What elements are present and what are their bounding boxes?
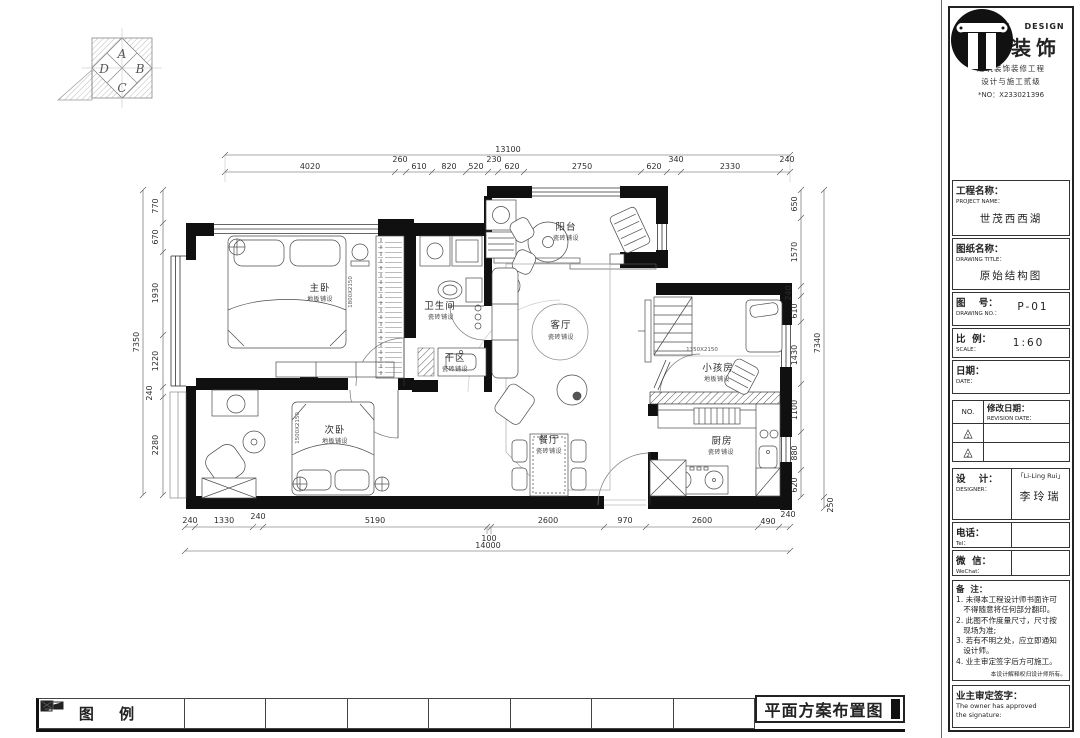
drawing-no-box: 图 号： DRAWING NO.： P-01: [952, 292, 1070, 326]
room-finish-dining: 瓷砖铺设: [536, 447, 562, 455]
room-label-dining: 餐厅: [538, 434, 559, 446]
title-end-bar: [891, 699, 900, 719]
note-line: 现场为准;: [956, 626, 1066, 636]
dim-label: 490: [760, 517, 775, 526]
legend-symbol-ramp: [429, 699, 510, 728]
nanhong-logo-icon: [950, 8, 1014, 72]
revision-label-en: REVISION DATE：: [987, 414, 1066, 422]
sheet-title-box: 平面方案布置图: [755, 695, 905, 723]
dim-label: 340: [668, 155, 683, 164]
floor-plan-canvas: A B C D: [0, 0, 1080, 738]
sheet-divider-line: [941, 0, 942, 738]
dim-label: 2750: [572, 162, 592, 171]
master-bedroom-furniture: [228, 236, 404, 378]
room-finish-balcony: 瓷砖铺设: [553, 234, 579, 242]
room-label-kids: 小孩房: [702, 362, 734, 374]
drawing-no-value: P-01: [1000, 301, 1066, 313]
room-label-bath: 卫生间: [424, 300, 456, 312]
dim-label: 240: [250, 512, 265, 521]
brand-subtitle-2: 设计与施工贰级: [952, 76, 1070, 87]
tel-label-en: Tel：: [956, 539, 1008, 547]
dim-label: 1100: [790, 400, 799, 420]
dim-label: 250: [826, 497, 835, 512]
dim-label: 670: [151, 229, 160, 244]
dim-label: 970: [617, 516, 632, 525]
drawing-title-box: 图纸名称： DRAWING TITLE： 原始结构图: [952, 238, 1070, 290]
drawing-value: 原始结构图: [956, 268, 1066, 283]
dim-label: 5190: [365, 516, 385, 525]
room-label-master: 主卧: [309, 282, 330, 294]
drawing-no-label-en: DRAWING NO.：: [956, 309, 1000, 317]
bed-size-master: 1800X2150: [348, 276, 354, 308]
note-line: 1. 未得本工程设计师书面许可: [956, 595, 1066, 605]
dim-label: 820: [441, 162, 456, 171]
wechat-label: 微 信：: [956, 553, 1008, 567]
designer-label-en: DESIGNER：: [956, 485, 1008, 493]
legend-symbol-half-bar: [511, 699, 592, 728]
revision-header: NO. 修改日期： REVISION DATE：: [953, 401, 1069, 424]
drawing-label-en: DRAWING TITLE：: [956, 255, 1066, 263]
room-finish-kids: 地板铺设: [704, 375, 730, 383]
revision-no-header: NO.: [953, 401, 984, 423]
room-finish-living: 瓷砖铺设: [548, 333, 574, 341]
legend-symbol-half-circle: [185, 699, 266, 728]
room-label-kitchen: 厨房: [711, 435, 732, 447]
scale-box: 比 例： SCALE： 1:60: [952, 328, 1070, 358]
dim-label: 880: [790, 445, 799, 460]
bed-size-second: 1500X2150: [295, 412, 301, 444]
designer-box: 设 计： DESIGNER： 「Li-Ling Rui」 李玲瑞: [952, 468, 1070, 520]
dim-total-right: 7340: [813, 333, 822, 353]
dim-label: 610: [790, 303, 799, 318]
legend-symbol-corner-box: [674, 699, 754, 728]
revision-row: △1: [953, 424, 1069, 443]
note-line: 2. 此图不作度量尺寸，尺寸按: [956, 616, 1066, 626]
legend-bar: 图 例: [36, 698, 755, 729]
notes-label: 备 注：: [956, 583, 1066, 595]
drawing-label: 图纸名称：: [956, 241, 1066, 255]
designer-signature: 「Li-Ling Rui」: [1012, 470, 1069, 480]
wechat-label-en: WeChat：: [956, 567, 1008, 575]
tel-label: 电话：: [956, 525, 1008, 539]
project-label-en: PROJECT NAME：: [956, 197, 1066, 205]
dim-label: 1330: [214, 516, 234, 525]
brand-area: NANHONG DESIGN 南鸿装饰 建筑装饰装修工程 设计与施工贰级 *NO…: [952, 10, 1070, 178]
dim-total-top: 13100: [495, 145, 520, 154]
dim-label: 2600: [538, 516, 558, 525]
dim-label: 610: [411, 162, 426, 171]
compass-letter-c: C: [117, 81, 126, 95]
dim-label: 240: [779, 155, 794, 164]
sheet-title: 平面方案布置图: [757, 697, 891, 721]
drawing-sheet: A B C D: [0, 0, 1080, 738]
notes-box: 备 注： 1. 未得本工程设计师书面许可 不得随意将任何部分翻印。 2. 此图不…: [952, 580, 1070, 681]
room-finish-kitchen: 瓷砖铺设: [708, 448, 734, 456]
room-finish-second: 地板铺设: [322, 437, 348, 445]
sheet-border-bottom: [36, 729, 905, 732]
owner-label-en2: the signature:: [956, 711, 1066, 720]
scale-value: 1:60: [991, 337, 1066, 349]
dim-label: 620: [790, 477, 799, 492]
dim-total-left: 7350: [132, 332, 141, 352]
compass-letter-a: A: [117, 47, 127, 61]
revision-triangle-icon: △2: [963, 446, 972, 458]
date-label: 日期：: [956, 363, 1066, 377]
note-line: 4. 业主审定签字后方可施工。: [956, 657, 1066, 667]
notes-footer: 本设计解释权归设计师所有。: [956, 669, 1066, 678]
scale-label: 比 例：: [956, 331, 991, 345]
date-label-en: DATE：: [956, 377, 1066, 385]
legend-symbol-filled-circle: [266, 699, 347, 728]
revision-table: NO. 修改日期： REVISION DATE： △1 △2: [952, 400, 1070, 462]
drawing-no-label: 图 号：: [956, 295, 1000, 309]
project-value: 世茂西西湖: [956, 211, 1066, 226]
room-label-second: 次卧: [324, 424, 345, 436]
dim-label: 620: [504, 162, 519, 171]
dim-label: 520: [468, 162, 483, 171]
revision-row: △2: [953, 443, 1069, 461]
room-finish-master: 地板铺设: [307, 295, 333, 303]
dim-label: 240: [145, 385, 154, 400]
compass-letter-b: B: [135, 62, 145, 76]
dim-label: 2330: [720, 162, 740, 171]
dim-label: 4020: [300, 162, 320, 171]
note-line: 3. 若有不明之处，应立即通知: [956, 636, 1066, 646]
tel-box: 电话： Tel：: [952, 522, 1070, 548]
note-line: 设计师。: [956, 646, 1066, 656]
dim-label: 240: [784, 285, 793, 300]
dim-label: 240: [182, 516, 197, 525]
date-box: 日期： DATE：: [952, 360, 1070, 394]
owner-signature-box: 业主审定签字： The owner has approved the signa…: [952, 685, 1070, 728]
legend-symbol-hatch-box: [592, 699, 673, 728]
dim-label: 620: [646, 162, 661, 171]
dim-label: 2280: [151, 435, 160, 455]
designer-label: 设 计：: [956, 471, 1008, 485]
owner-label-en1: The owner has approved: [956, 702, 1066, 711]
compass-letter-d: D: [98, 62, 109, 76]
note-line: 不得随意将任何部分翻印。: [956, 605, 1066, 615]
project-name-box: 工程名称： PROJECT NAME： 世茂西西湖: [952, 180, 1070, 236]
wechat-box: 微 信： WeChat：: [952, 550, 1070, 576]
dim-label: 1430: [790, 345, 799, 365]
dim-label: 1570: [790, 242, 799, 262]
dim-label: 260: [392, 155, 407, 164]
designer-name: 李玲瑞: [1012, 488, 1069, 504]
room-label-living: 客厅: [550, 319, 571, 331]
dim-label: 240: [780, 510, 795, 519]
dim-label: 1930: [151, 283, 160, 303]
room-label-balcony: 阳台: [555, 221, 576, 233]
dim-label: 1220: [151, 351, 160, 371]
legend-symbol-dot: [348, 699, 429, 728]
scale-label-en: SCALE：: [956, 345, 991, 353]
dry-area-hatch: [418, 348, 434, 376]
bed-size-kids: 1350X2150: [686, 347, 718, 353]
room-finish-bath: 瓷砖铺设: [428, 313, 454, 321]
room-label-dry: 干区: [444, 353, 465, 364]
dim-label: 650: [790, 196, 799, 211]
new-wall-hatch: [650, 392, 780, 404]
dim-label: 230: [486, 155, 501, 164]
owner-label: 业主审定签字：: [956, 688, 1066, 702]
orientation-compass-icon: [58, 28, 162, 108]
room-finish-dry: 瓷砖铺设: [442, 365, 468, 373]
project-label: 工程名称：: [956, 183, 1066, 197]
title-block: NANHONG DESIGN 南鸿装饰 建筑装饰装修工程 设计与施工贰级 *NO…: [948, 6, 1074, 732]
dim-total-bottom: 14000: [475, 541, 500, 550]
revision-triangle-icon: △1: [963, 427, 972, 439]
dim-label: 770: [151, 198, 160, 213]
revision-label: 修改日期：: [987, 402, 1066, 414]
brand-license-no: *NO：X233021396: [952, 90, 1070, 100]
dim-label: 2600: [692, 516, 712, 525]
